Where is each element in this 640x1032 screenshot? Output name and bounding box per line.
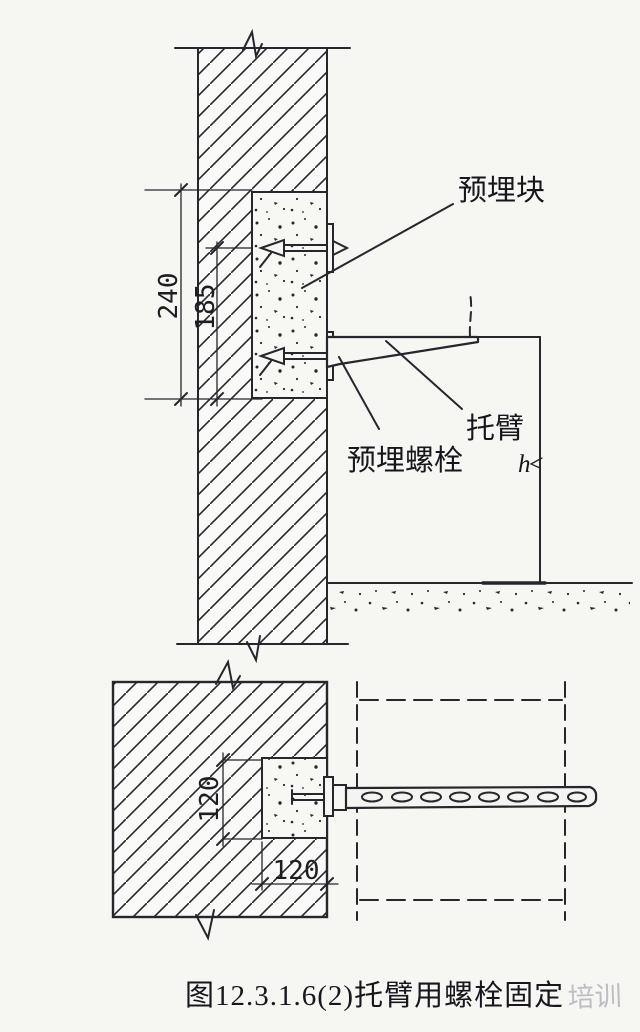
leader-embedded-bolt: [339, 357, 379, 429]
bracket-arm: [327, 294, 540, 367]
embedded-block-section: [252, 192, 327, 398]
height-reference-line: h: [518, 337, 542, 583]
technical-drawing-canvas: 240 185: [0, 0, 640, 1032]
watermark-text: 培训: [567, 981, 622, 1013]
dim-185-value: 185: [191, 284, 221, 331]
height-symbol: h: [518, 451, 531, 478]
caption-row: 图12.3.1.6(2)托臂用螺栓固定 培训: [185, 979, 622, 1013]
section-view: 240 185: [145, 32, 632, 660]
dim-120h-value: 120: [273, 856, 320, 886]
dim-240-value: 240: [154, 273, 184, 320]
label-embedded-block: 预埋块: [458, 175, 545, 207]
label-embedded-bolt: 预埋螺栓: [347, 444, 463, 477]
dim-120v-value: 120: [195, 776, 225, 823]
ground-speckles: [330, 587, 630, 613]
figure-caption: 图12.3.1.6(2)托臂用螺栓固定: [185, 979, 564, 1012]
hanger-dashed-line: [470, 294, 471, 336]
channel-strut: [346, 787, 596, 808]
ground: [327, 583, 632, 613]
label-bracket: 托臂: [466, 412, 524, 445]
embedded-block-plan: [262, 758, 327, 838]
plan-view: 120 120: [113, 662, 596, 938]
annotations: 预埋块 托臂 预埋螺栓: [302, 175, 545, 477]
drawing-page: 240 185: [0, 0, 640, 1032]
